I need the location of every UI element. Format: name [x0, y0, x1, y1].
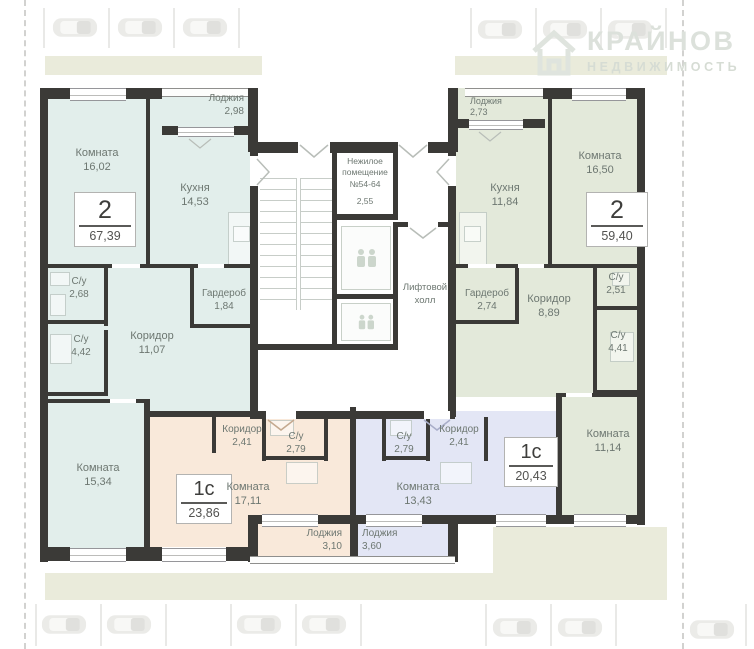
parking-stall-divider	[35, 604, 37, 646]
room-label-room-d: Комната13,43	[378, 481, 458, 509]
wall-segment	[330, 142, 402, 153]
parking-stall-divider	[470, 8, 472, 48]
sink-icon	[233, 226, 250, 242]
apartment-badge-d: 1с 20,43	[504, 437, 558, 487]
wall-segment	[250, 344, 398, 350]
car-icon	[182, 15, 228, 45]
car-icon	[106, 612, 152, 642]
parking-stall-divider	[745, 604, 747, 646]
room-label-bath2-b: С/у4,41	[598, 330, 638, 355]
elevator-icon	[341, 303, 391, 341]
window	[162, 548, 226, 562]
parking-stall-divider	[485, 604, 487, 646]
room-label-room2-b: Комната11,14	[568, 428, 648, 456]
parking-stall-divider	[230, 604, 232, 646]
wall-segment	[593, 306, 637, 310]
house-icon	[530, 26, 578, 85]
agency-subtitle: НЕДВИЖИМОСТЬ	[587, 60, 740, 74]
wall-segment	[382, 456, 428, 460]
door-swing-icon	[409, 226, 437, 244]
stairwell-stairs	[260, 178, 332, 310]
wall-segment	[40, 88, 70, 99]
parking-stall-divider	[615, 604, 617, 646]
wall-segment	[266, 456, 326, 460]
room-label-room1-a: Комната16,02	[57, 147, 137, 175]
car-icon	[236, 612, 282, 642]
landscaping-strip	[493, 527, 667, 600]
car-icon	[689, 617, 735, 647]
apartment-badge-b: 2 59,40	[586, 192, 648, 247]
floor-plan: КРАЙНОВ НЕДВИЖИМОСТЬ	[0, 0, 754, 649]
room-label-loggia-c: Лоджия3,10	[268, 528, 342, 553]
wall-segment	[150, 411, 256, 417]
window-vent-icon	[188, 136, 212, 154]
door-opening	[112, 264, 140, 268]
room-label-bath2-a: С/у4,42	[54, 334, 108, 359]
door-swing-icon	[436, 158, 450, 191]
door-opening	[518, 264, 544, 268]
window-vent-icon	[478, 129, 502, 147]
wall-segment	[46, 264, 256, 268]
wall-segment	[126, 88, 162, 99]
wall-segment	[332, 294, 398, 299]
wall-segment	[234, 126, 258, 135]
car-icon	[52, 15, 98, 45]
apartment-b-region	[556, 397, 645, 517]
window	[262, 514, 318, 527]
site-boundary-line	[24, 0, 26, 649]
car-icon	[477, 17, 523, 47]
room-label-wardrobe-b: Гардероб2,74	[455, 288, 519, 313]
car-icon	[117, 15, 163, 45]
car-icon	[557, 615, 603, 645]
window	[572, 88, 626, 101]
room-label-room-c: Комната17,11	[208, 481, 288, 509]
window	[366, 514, 422, 527]
door-opening	[198, 264, 224, 268]
parking-stall-divider	[238, 8, 240, 48]
room-label-room1-b: Комната16,50	[560, 150, 640, 178]
room-label-hall-d: Коридор2,41	[433, 424, 485, 449]
door-opening	[468, 264, 496, 268]
window	[574, 514, 626, 527]
wall-segment	[126, 547, 162, 561]
window	[70, 548, 126, 562]
wall-segment	[332, 214, 398, 220]
parking-stall-divider	[100, 604, 102, 646]
door-opening	[566, 393, 592, 397]
landscaping-strip	[45, 56, 262, 75]
wall-segment	[455, 320, 515, 324]
parking-stall-divider	[173, 8, 175, 48]
nonresidential-label: Нежилое помещение №54-64 2,55	[334, 156, 396, 208]
parking-stall-divider	[165, 604, 167, 646]
door-swing-icon	[398, 144, 428, 163]
room-label-loggia-a: Лоджия2,98	[170, 93, 244, 118]
room-label-bath1-a: С/у2,68	[52, 276, 106, 301]
wall-segment	[40, 88, 48, 562]
landscaping-strip	[45, 573, 493, 600]
parking-stall-divider	[295, 604, 297, 646]
parking-stall-divider	[550, 604, 552, 646]
car-icon	[301, 612, 347, 642]
room-label-loggia-b: Лоджия2,73	[470, 96, 530, 119]
lift-hall-label: Лифтовой холл	[398, 282, 452, 308]
room-label-bath-d: С/у2,79	[382, 431, 426, 456]
agency-name: КРАЙНОВ	[587, 26, 740, 57]
car-icon	[41, 612, 87, 642]
elevator-icon	[341, 226, 391, 290]
appliance-icon	[286, 462, 318, 484]
room-label-bath1-b: С/у2,51	[596, 272, 636, 297]
loggia-glazing	[250, 556, 358, 564]
door-swing-icon	[256, 158, 270, 191]
room-label-hall-a: Коридор11,07	[112, 330, 192, 358]
room-label-kitchen-a: Кухня14,53	[155, 182, 235, 210]
wall-segment	[40, 547, 70, 561]
wall-segment	[324, 417, 328, 461]
wall-segment	[256, 142, 300, 153]
wall-segment	[523, 119, 545, 128]
apartment-badge-a: 2 67,39	[74, 192, 136, 247]
site-boundary-line	[682, 0, 684, 649]
car-icon	[492, 615, 538, 645]
wall-segment	[350, 407, 356, 517]
parking-stall-divider	[43, 8, 45, 48]
room-label-hall-c: Коридор2,41	[216, 424, 268, 449]
room-label-bath-c: С/у2,79	[274, 431, 318, 456]
agency-logo: КРАЙНОВ НЕДВИЖИМОСТЬ	[530, 26, 740, 85]
room-label-wardrobe-a: Гардероб1,84	[192, 288, 256, 313]
parking-stall-divider	[108, 8, 110, 48]
parking-stall-divider	[360, 604, 362, 646]
room-label-room2-a: Комната15,34	[58, 462, 138, 490]
door-opening	[110, 399, 136, 403]
wall-segment	[250, 152, 258, 417]
wall-segment	[455, 119, 469, 128]
wall-segment	[548, 94, 552, 264]
wall-segment	[46, 392, 104, 396]
window	[70, 88, 126, 101]
sink-icon	[464, 226, 481, 242]
loggia-glazing	[358, 556, 455, 564]
wall-segment	[46, 320, 104, 324]
room-label-hall-b: Коридор8,89	[518, 293, 580, 321]
wall-segment	[144, 399, 150, 547]
window	[496, 514, 546, 527]
wall-segment	[350, 515, 358, 562]
room-label-loggia-d: Лоджия3,60	[362, 528, 436, 553]
wall-segment	[162, 126, 178, 135]
wall-segment	[190, 324, 258, 328]
door-swing-icon	[299, 144, 329, 163]
room-label-kitchen-b: Кухня11,84	[465, 182, 545, 210]
wall-segment	[146, 94, 150, 264]
